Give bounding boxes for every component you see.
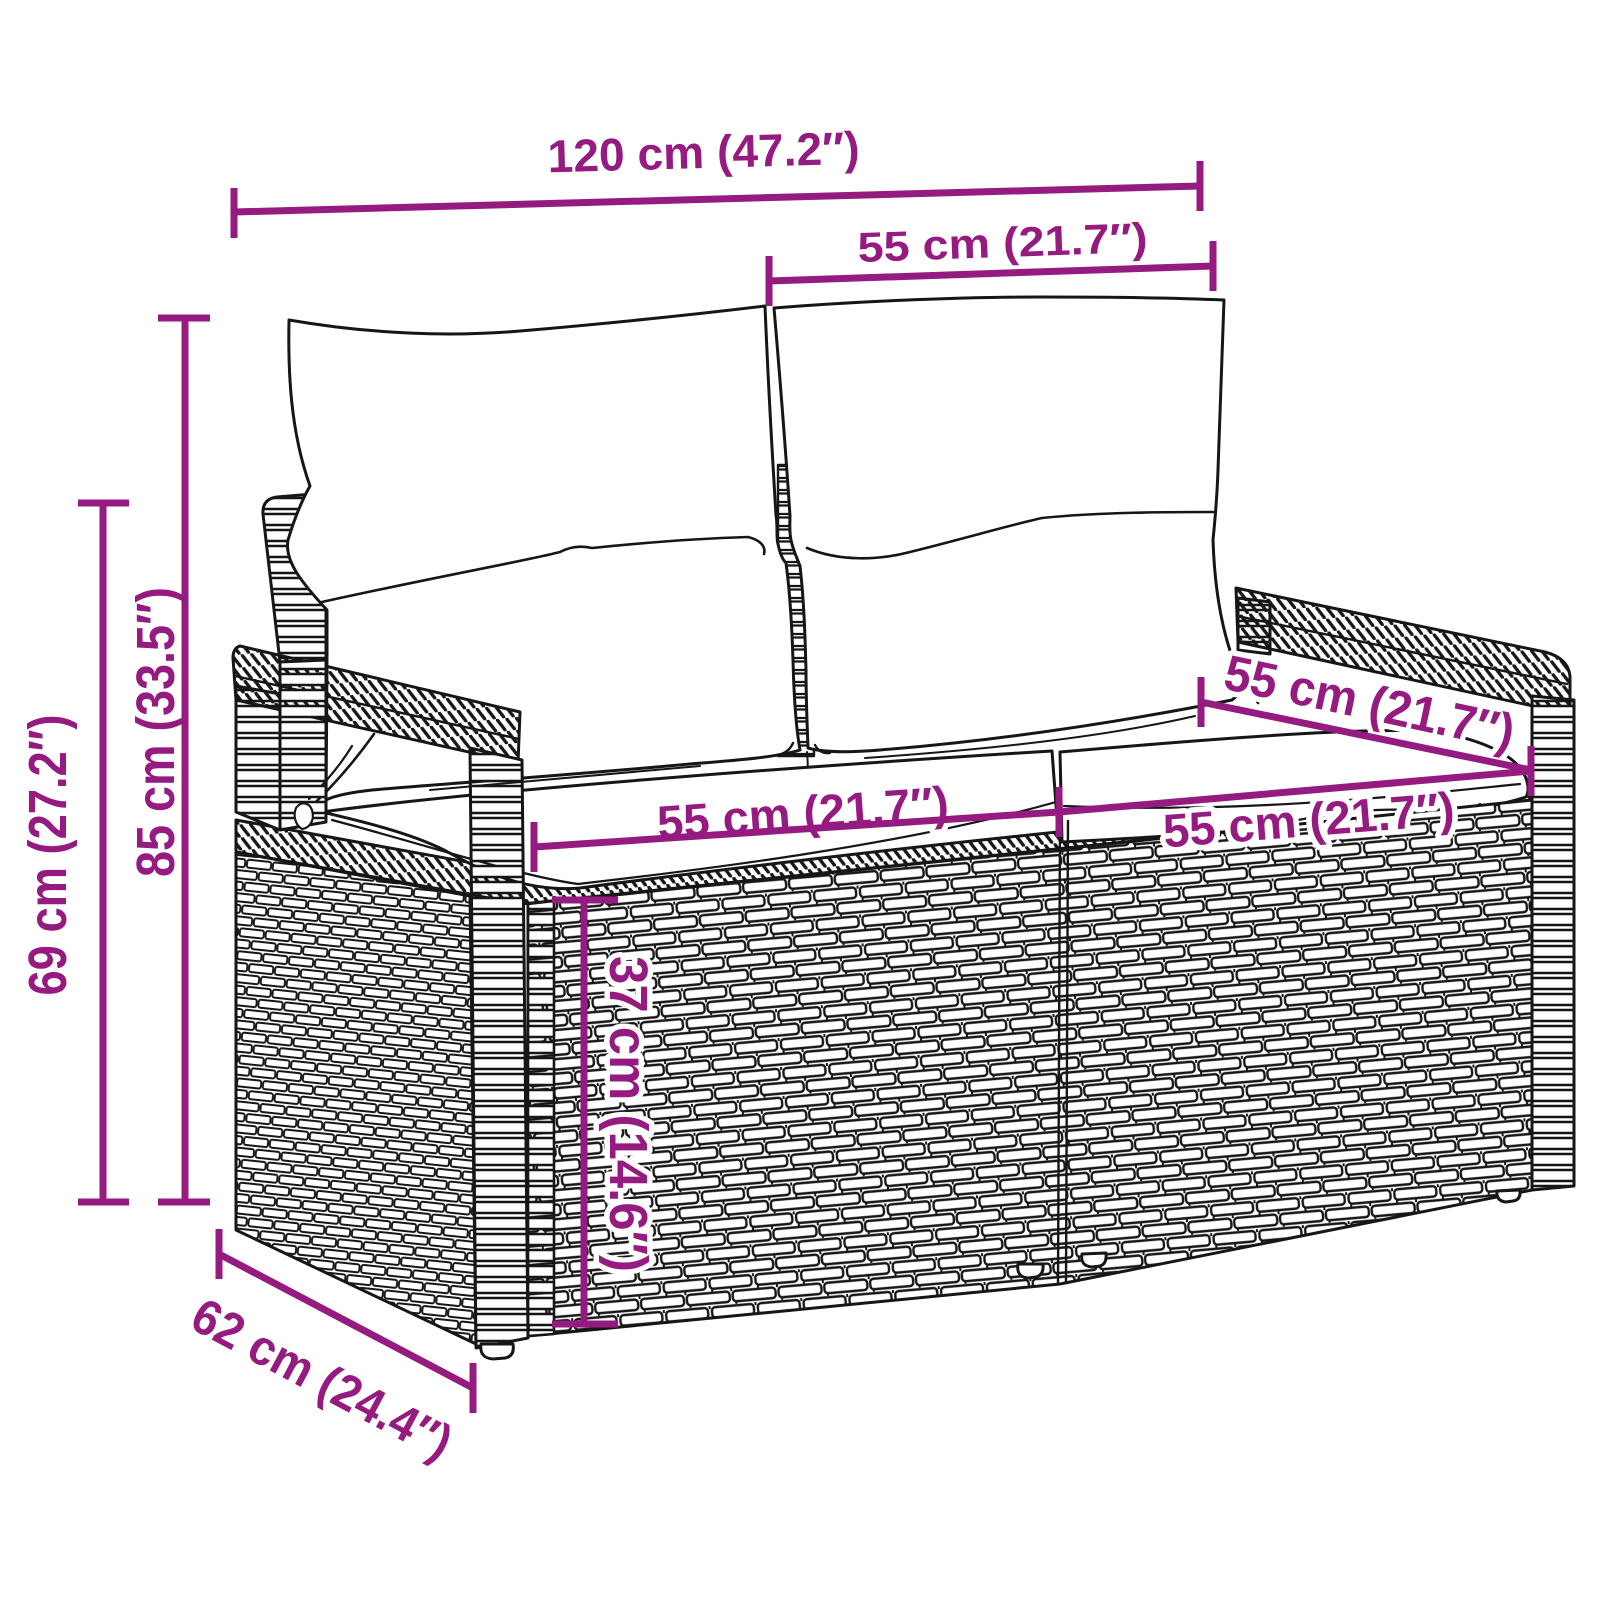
svg-text:120 cm (47.2″): 120 cm (47.2″) [547, 122, 860, 183]
svg-text:85 cm (33.5″): 85 cm (33.5″) [126, 587, 186, 877]
svg-text:69 cm (27.2″): 69 cm (27.2″) [18, 715, 78, 996]
svg-text:37 cm (14.6″): 37 cm (14.6″) [598, 956, 658, 1272]
